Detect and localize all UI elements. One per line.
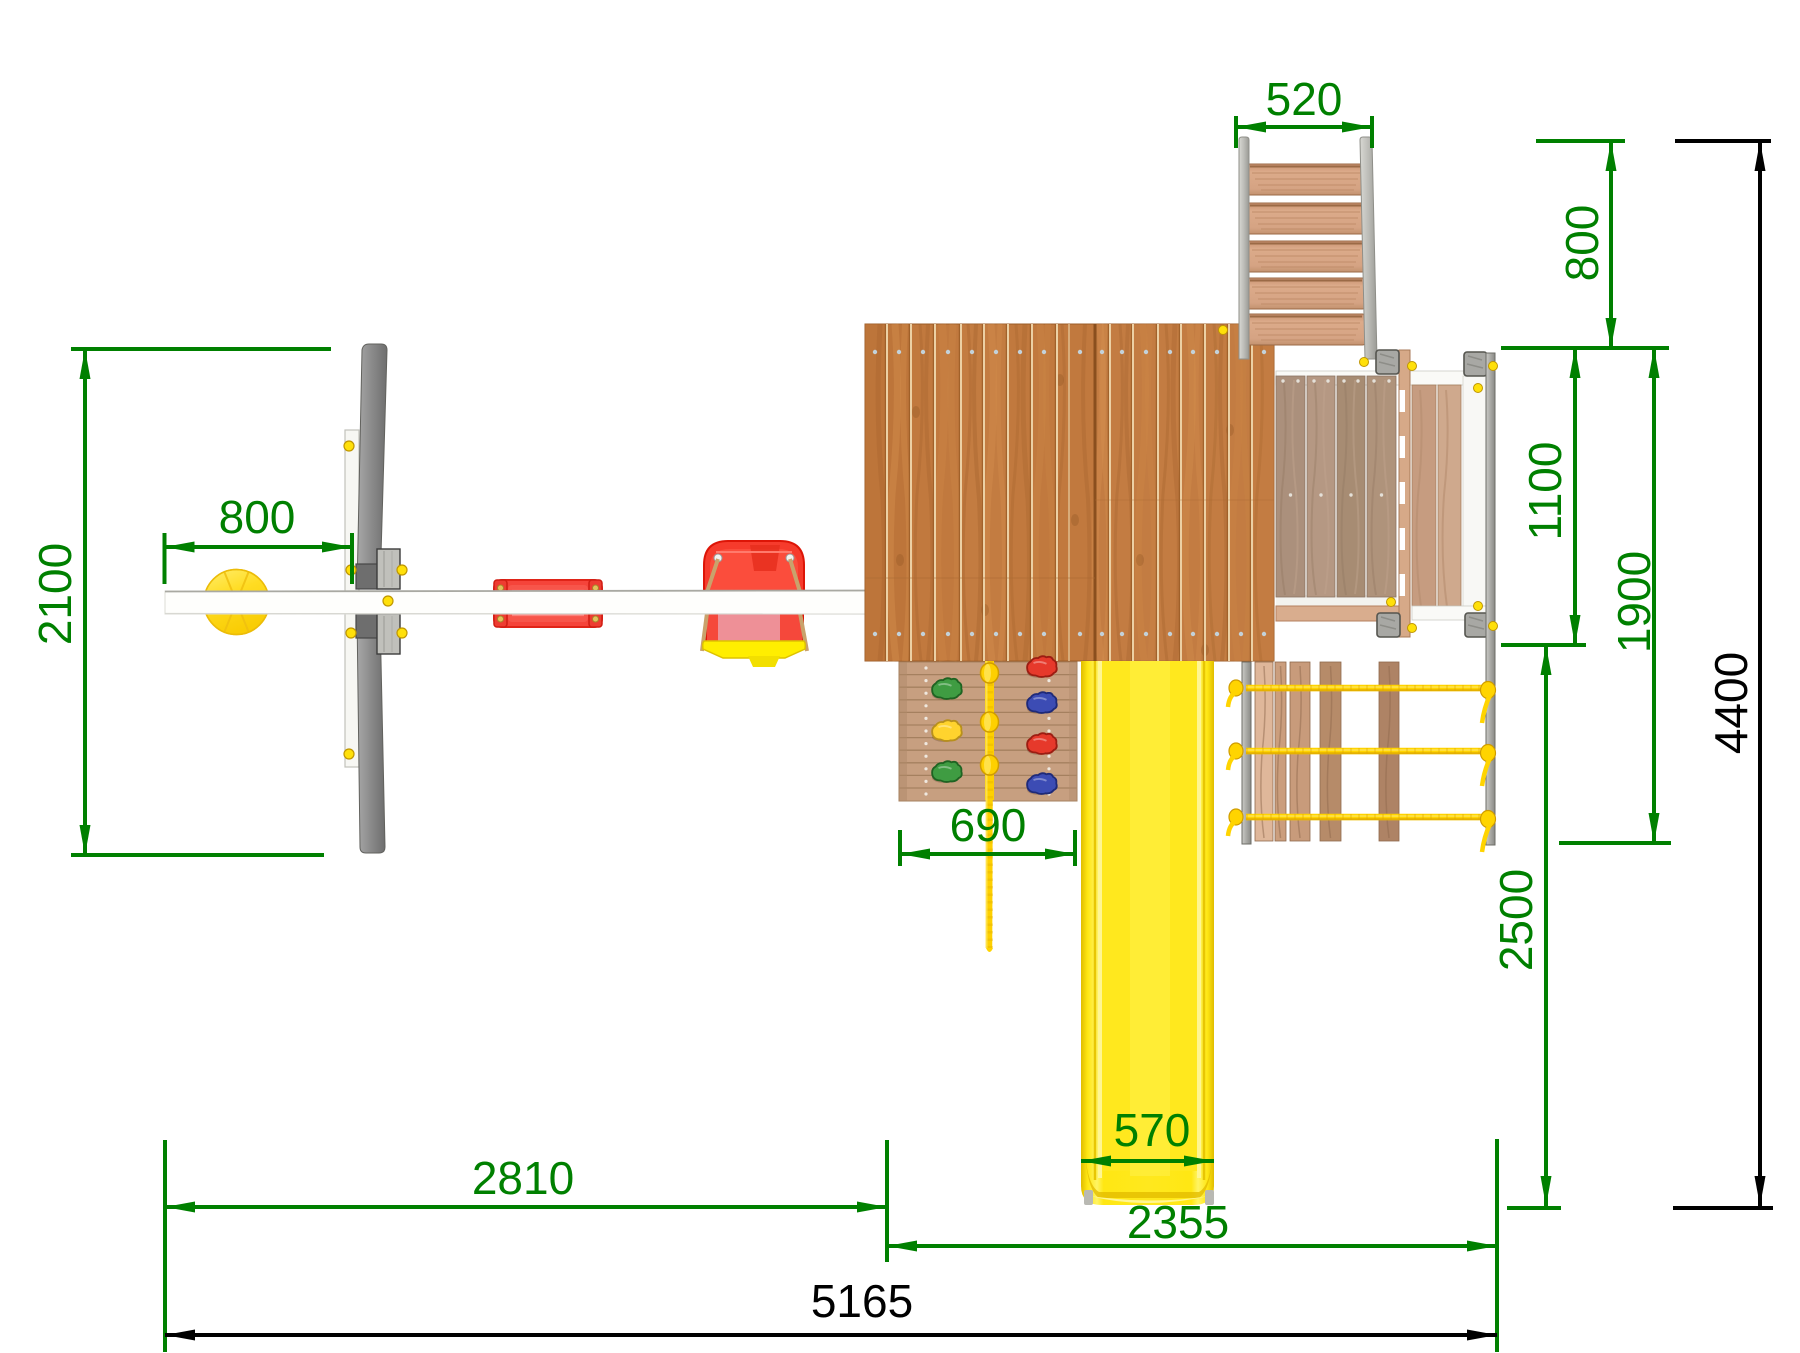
svg-text:1100: 1100 <box>1519 442 1571 541</box>
svg-text:5165: 5165 <box>811 1275 913 1327</box>
svg-text:520: 520 <box>1266 73 1343 125</box>
svg-text:2100: 2100 <box>29 543 81 645</box>
svg-text:570: 570 <box>1114 1104 1191 1156</box>
svg-text:1900: 1900 <box>1608 551 1660 653</box>
svg-text:2500: 2500 <box>1490 869 1542 971</box>
svg-text:4400: 4400 <box>1705 652 1757 754</box>
svg-text:690: 690 <box>950 799 1027 851</box>
svg-text:2355: 2355 <box>1127 1196 1229 1248</box>
svg-text:800: 800 <box>219 491 296 543</box>
svg-text:2810: 2810 <box>472 1152 574 1204</box>
svg-text:800: 800 <box>1556 205 1608 282</box>
